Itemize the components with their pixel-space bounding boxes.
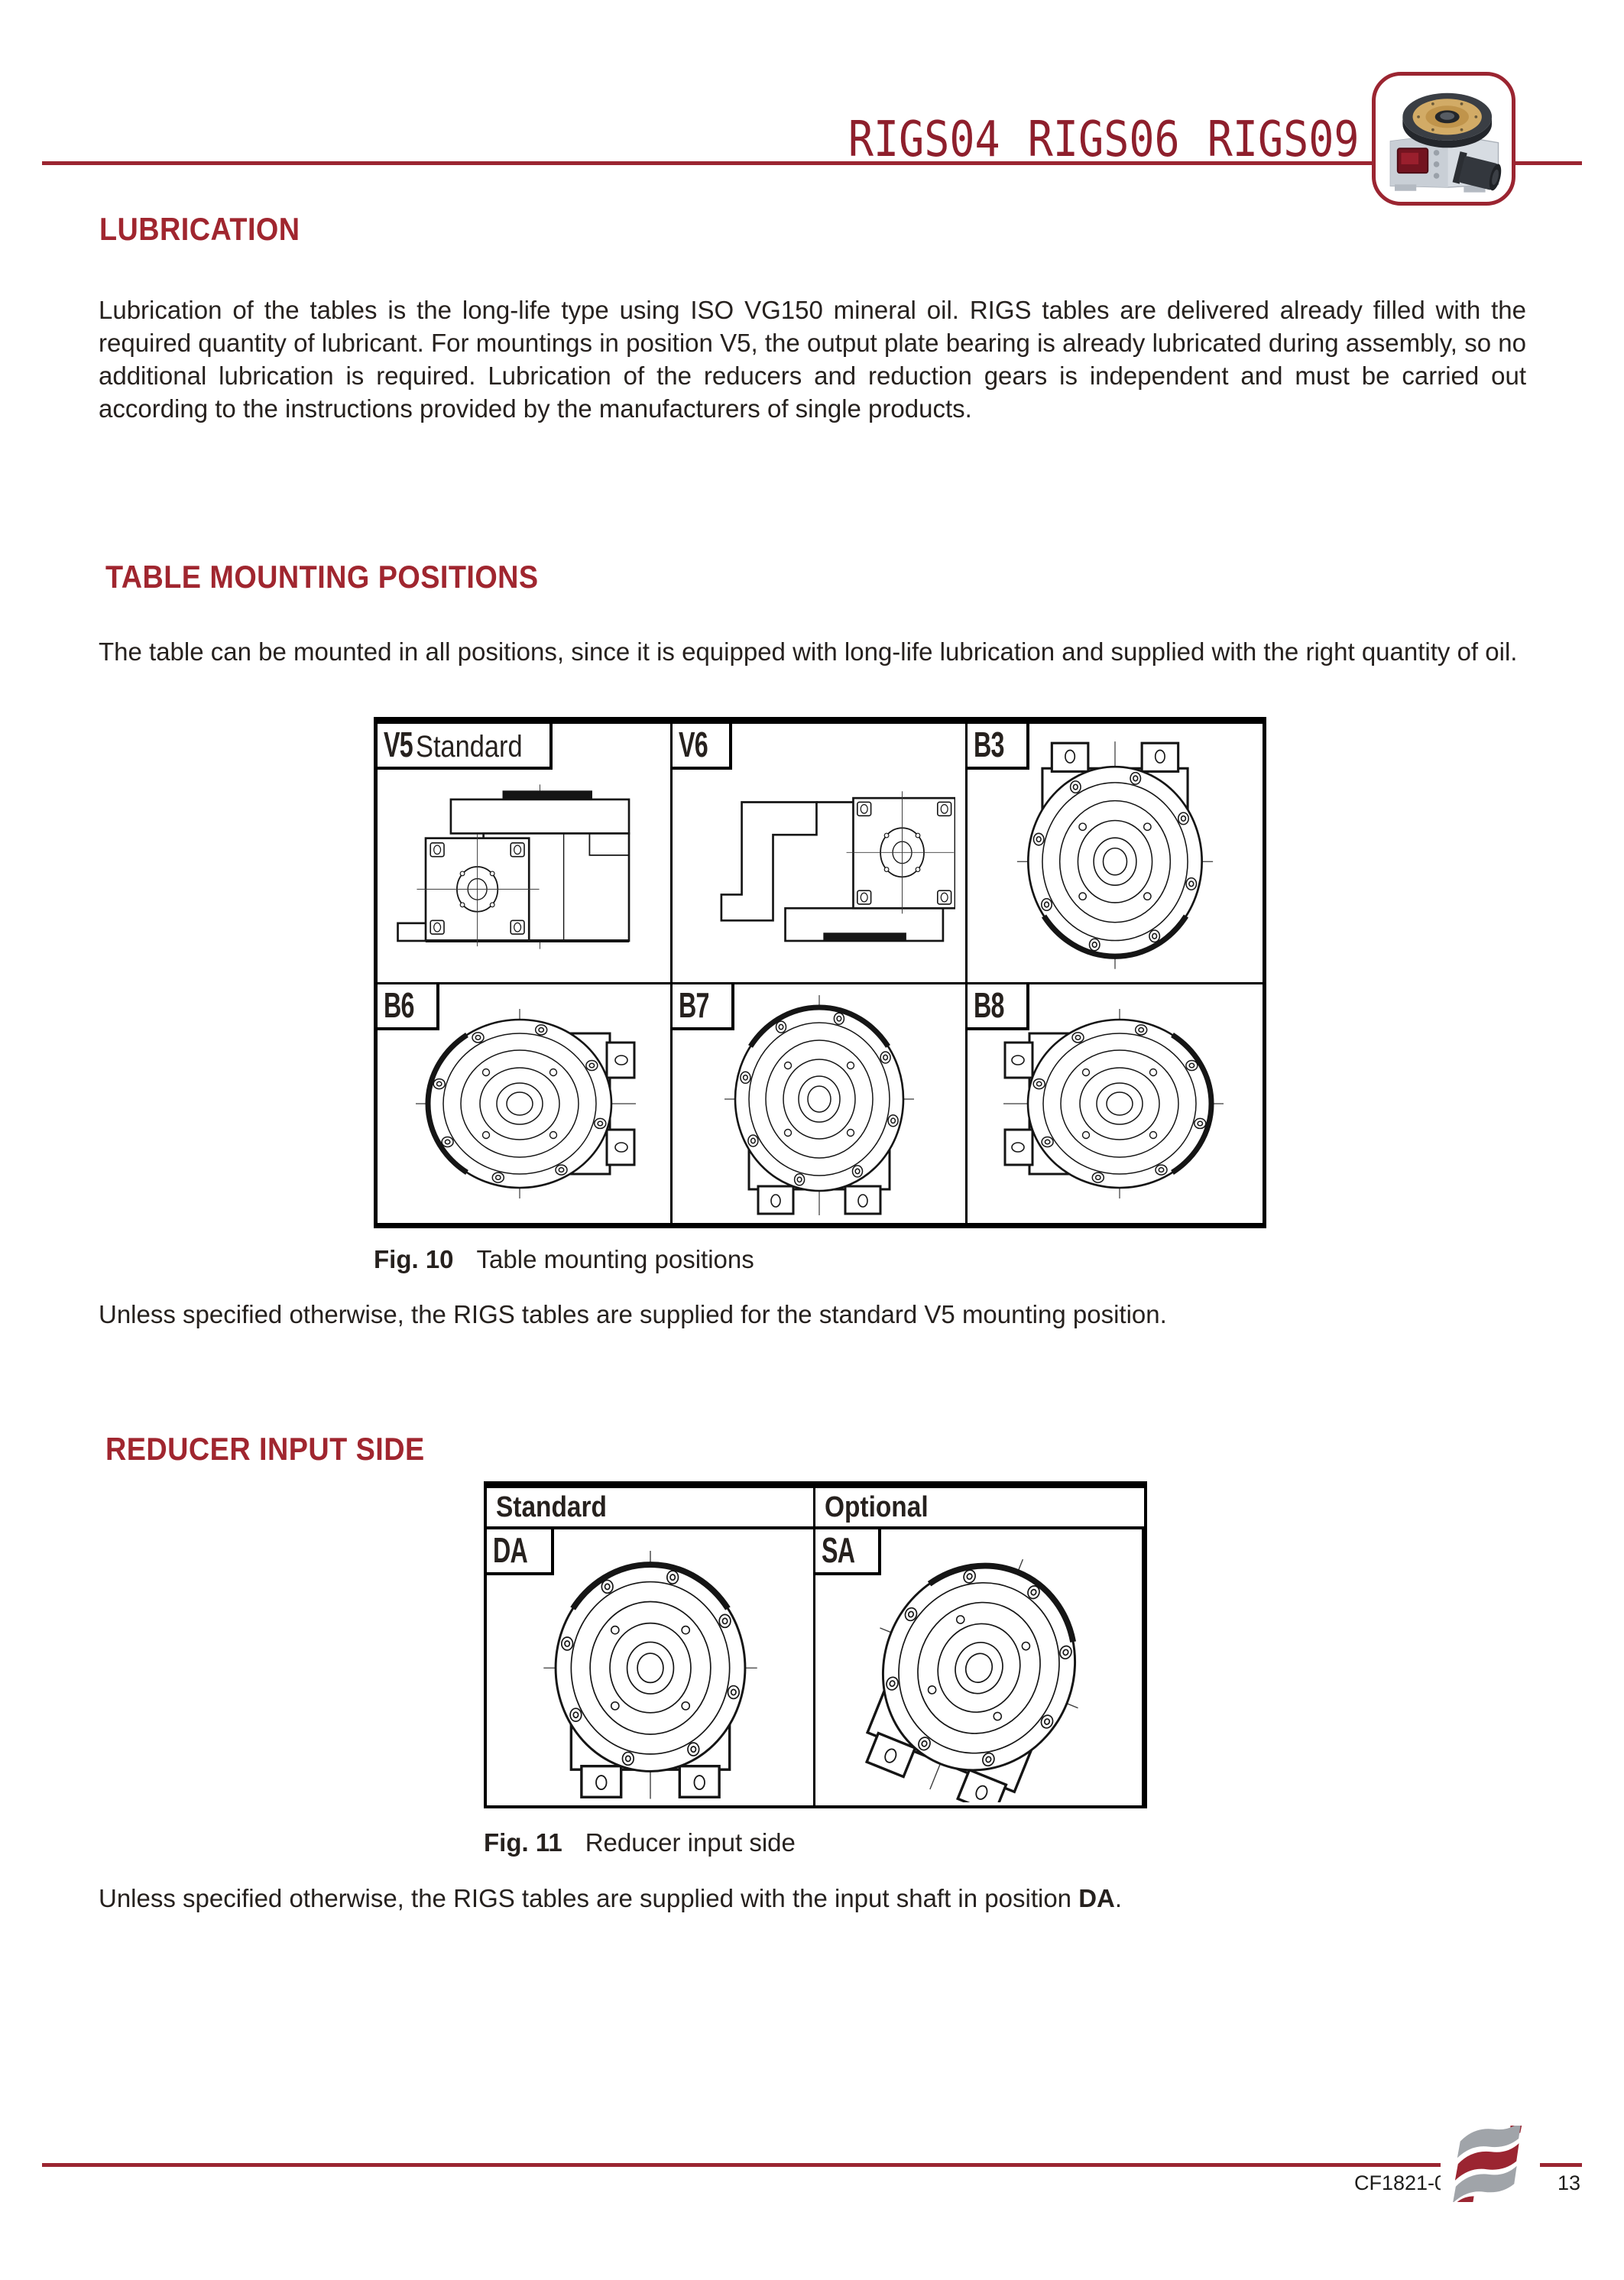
position-label-v6: V6 xyxy=(673,724,732,770)
b8-front-view-drawing xyxy=(1000,989,1230,1218)
fig11-cell-da: DA xyxy=(487,1529,815,1805)
b6-front-view-drawing xyxy=(410,989,639,1218)
fig11-header-standard: Standard xyxy=(487,1488,815,1529)
page-title: RIGS04RIGS06RIGS09 xyxy=(848,112,1360,168)
fig10-cell-v6: V6 xyxy=(673,724,968,984)
sa-front-view-drawing xyxy=(850,1544,1108,1802)
position-label-v5: V5 Standard xyxy=(378,724,553,770)
v5-side-view-drawing xyxy=(388,768,660,965)
mounting-note: Unless specified otherwise, the RIGS tab… xyxy=(99,1298,1566,1331)
fig10-caption: Fig. 10Table mounting positions xyxy=(374,1245,754,1274)
position-label-b3: B3 xyxy=(968,724,1029,770)
model-name: RIGS09 xyxy=(1207,112,1360,168)
product-photo-frame xyxy=(1372,72,1515,206)
model-name: RIGS06 xyxy=(1028,112,1180,168)
page-number: 13 xyxy=(1558,2171,1580,2195)
lubrication-heading: LUBRICATION xyxy=(99,211,300,248)
position-label-b6: B6 xyxy=(378,984,439,1030)
fig10-cell-b7: B7 xyxy=(673,984,968,1223)
document-page: RIGS04RIGS06RIGS09 xyxy=(0,0,1624,2280)
fig11-header-optional: Optional xyxy=(815,1488,1144,1529)
fig10-cell-v5: V5 Standard xyxy=(378,724,673,984)
fig11-cell-sa: SA xyxy=(815,1529,1144,1805)
input-side-label-da: DA xyxy=(487,1529,554,1575)
lubrication-paragraph: Lubrication of the tables is the long-li… xyxy=(99,294,1526,425)
table-mounting-heading: TABLE MOUNTING POSITIONS xyxy=(105,559,539,595)
footer-rule xyxy=(42,2163,1582,2167)
header-rule xyxy=(42,161,1582,165)
da-front-view-drawing xyxy=(521,1544,780,1802)
model-name: RIGS04 xyxy=(848,112,1000,168)
fig11-caption: Fig. 11Reducer input side xyxy=(484,1828,796,1857)
position-label-b7: B7 xyxy=(673,984,734,1030)
v6-side-view-drawing xyxy=(683,768,955,965)
brand-logo xyxy=(1440,2126,1541,2202)
reducer-input-heading: REDUCER INPUT SIDE xyxy=(105,1431,425,1468)
document-code: CF1821-0 xyxy=(1354,2171,1446,2195)
fig10-mounting-positions-table: V5 Standard V6 B3 B6 B7 xyxy=(374,717,1266,1228)
input-side-label-sa: SA xyxy=(815,1529,881,1575)
b7-front-view-drawing xyxy=(705,989,934,1218)
fig10-cell-b6: B6 xyxy=(378,984,673,1223)
fig11-reducer-input-table: Standard Optional DA SA xyxy=(484,1481,1147,1808)
b3-front-view-drawing xyxy=(997,738,1233,975)
input-shaft-note: Unless specified otherwise, the RIGS tab… xyxy=(99,1882,1566,1915)
fig10-cell-b3: B3 xyxy=(968,724,1263,984)
position-label-b8: B8 xyxy=(968,984,1029,1030)
table-mounting-paragraph: The table can be mounted in all position… xyxy=(99,635,1526,668)
rotary-table-product-image xyxy=(1378,78,1509,200)
fig10-cell-b8: B8 xyxy=(968,984,1263,1223)
